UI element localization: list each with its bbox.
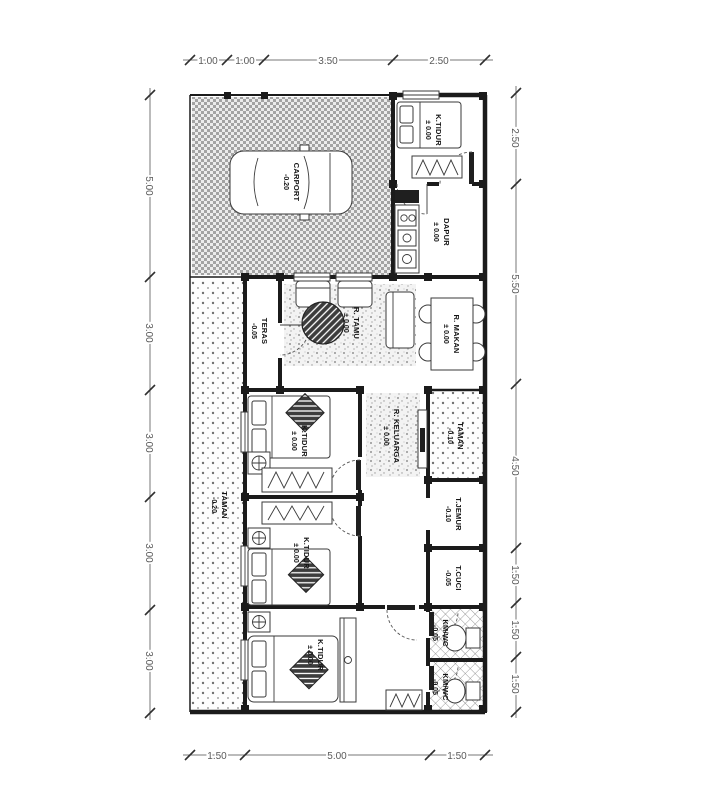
dining-table-icon (419, 298, 485, 370)
coffee-table-icon (302, 302, 344, 344)
nightstand-lamp-icon (248, 612, 270, 632)
svg-text:3.00: 3.00 (143, 323, 154, 343)
svg-text:R. KELUARGA: R. KELUARGA (392, 409, 401, 464)
svg-text:1.50: 1.50 (509, 674, 520, 694)
wardrobe-icon (386, 690, 422, 710)
floor-plan-canvas: CARPORT -0.20 K.TIDUR ± 0.00 DAPUR ± 0.0… (0, 0, 706, 800)
svg-text:-0.05: -0.05 (250, 323, 257, 339)
dimension-bottom: 1.50 5.00 1.50 (183, 750, 493, 762)
kitchen-counter-icon (395, 190, 419, 273)
svg-text:-0.20: -0.20 (210, 497, 217, 513)
svg-text:4.50: 4.50 (509, 456, 520, 476)
svg-text:3.50: 3.50 (318, 56, 338, 67)
bed-icon (248, 549, 330, 605)
car-icon (230, 145, 352, 220)
svg-text:1.50: 1.50 (509, 620, 520, 640)
svg-text:5.00: 5.00 (327, 751, 347, 762)
svg-text:1.50: 1.50 (207, 751, 227, 762)
svg-text:± 0.00: ± 0.00 (292, 543, 299, 563)
svg-text:-0.05: -0.05 (431, 679, 438, 695)
svg-text:KM/WC: KM/WC (441, 619, 450, 647)
svg-text:TAMAN: TAMAN (456, 422, 465, 450)
svg-text:-0.20: -0.20 (282, 174, 289, 190)
nightstand-lamp-icon (248, 528, 270, 548)
room-label-dapur: DAPUR ± 0.00 (432, 218, 451, 246)
wardrobe-icon (262, 468, 332, 492)
svg-text:± 0.00: ± 0.00 (382, 426, 389, 446)
svg-text:T.CUCI: T.CUCI (454, 565, 463, 590)
svg-text:R. MAKAN: R. MAKAN (452, 314, 461, 353)
wardrobe-icon (412, 156, 462, 178)
svg-text:± 0.00: ± 0.00 (442, 324, 449, 344)
room-label-jemur: T.JEMUR -0.10 (444, 497, 463, 531)
window-icon (294, 273, 330, 281)
floor-plan-drawing: CARPORT -0.20 K.TIDUR ± 0.00 DAPUR ± 0.0… (0, 0, 706, 800)
svg-text:K.TIDUR: K.TIDUR (316, 639, 325, 671)
svg-text:K.TIDUR: K.TIDUR (300, 425, 309, 457)
tv-cabinet-icon (418, 410, 427, 468)
desk-icon (340, 618, 356, 702)
door-bedroom-bottom (387, 605, 417, 640)
svg-text:T.JEMUR: T.JEMUR (454, 497, 463, 531)
svg-text:± 0.00: ± 0.00 (424, 120, 431, 140)
svg-text:5.00: 5.00 (143, 176, 154, 196)
svg-text:TAMAN: TAMAN (220, 491, 229, 519)
svg-text:-0.10: -0.10 (444, 506, 451, 522)
svg-text:K.TIDUR: K.TIDUR (302, 537, 311, 569)
svg-text:2.50: 2.50 (429, 56, 449, 67)
door-bedroom-low (330, 506, 361, 536)
svg-text:K.TIDUR: K.TIDUR (434, 114, 443, 146)
svg-text:1.00: 1.00 (235, 56, 255, 67)
dimension-left: 5.00 3.00 3.00 3.00 3.00 (143, 88, 155, 720)
wardrobe-icon (262, 502, 332, 524)
svg-text:3.00: 3.00 (143, 433, 154, 453)
svg-text:1.50: 1.50 (509, 565, 520, 585)
window-icon (336, 273, 372, 281)
dimension-right: 2.50 5.50 4.50 1.50 1.50 1.50 (509, 86, 521, 718)
svg-text:3.00: 3.00 (143, 651, 154, 671)
room-label-cuci: T.CUCI -0.05 (444, 565, 463, 590)
svg-text:3.00: 3.00 (143, 543, 154, 563)
svg-text:-0.05: -0.05 (431, 625, 438, 641)
svg-text:5.50: 5.50 (509, 274, 520, 294)
svg-text:-0.05: -0.05 (444, 570, 451, 586)
svg-text:R. TAMU: R. TAMU (352, 307, 361, 339)
svg-text:DAPUR: DAPUR (442, 218, 451, 246)
garden-left-texture (191, 279, 243, 710)
window-icon (403, 91, 439, 99)
bed-icon (248, 394, 330, 458)
svg-text:KM/WC: KM/WC (441, 673, 450, 701)
svg-text:TERAS: TERAS (260, 318, 269, 344)
dimension-top: 1.00 1.00 3.50 2.50 (183, 55, 493, 67)
svg-text:± 0.00: ± 0.00 (432, 222, 439, 242)
svg-text:CARPORT: CARPORT (292, 163, 301, 202)
svg-text:2.50: 2.50 (509, 128, 520, 148)
svg-text:1.50: 1.50 (447, 751, 467, 762)
room-label-teras: TERAS -0.05 (250, 318, 269, 344)
door-bedroom-mid (330, 460, 361, 490)
svg-text:± 0.00: ± 0.00 (342, 313, 349, 333)
svg-text:± 0.00: ± 0.00 (306, 645, 313, 665)
svg-text:-0.10: -0.10 (446, 428, 453, 444)
svg-text:± 0.00: ± 0.00 (290, 431, 297, 451)
svg-text:1.00: 1.00 (198, 56, 218, 67)
